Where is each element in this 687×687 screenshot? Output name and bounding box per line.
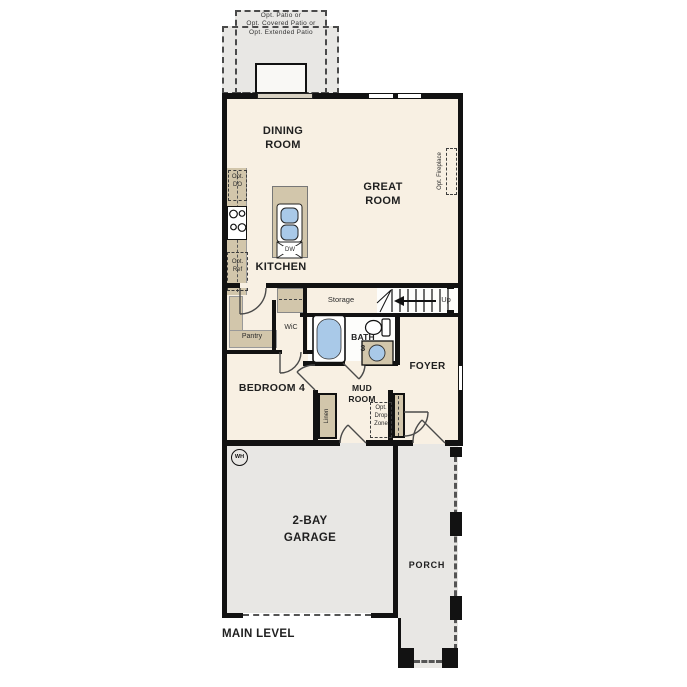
floor-plan: WH xyxy=(0,0,687,687)
porch-post-bottom-right xyxy=(442,648,458,668)
porch-post-mid1 xyxy=(450,512,462,536)
wall-right-upper xyxy=(458,93,463,366)
pantry-door-opening xyxy=(240,283,266,288)
wall-pantry-right xyxy=(272,300,276,352)
garage-door-dash xyxy=(243,614,371,617)
window-foyer xyxy=(458,366,463,390)
porch-floor xyxy=(398,444,458,668)
dw-label: DW xyxy=(283,246,297,254)
bedroom4-label: BEDROOM 4 xyxy=(227,382,317,396)
window-top-1 xyxy=(369,93,393,99)
porch-edge-left xyxy=(398,618,401,668)
opt-fireplace-outline xyxy=(446,148,457,195)
wall-bath-bottom-a xyxy=(303,361,345,366)
wic-label: WiC xyxy=(278,323,304,332)
wall-bath-bottom-b xyxy=(365,361,398,366)
opt-fireplace-label: Opt. Fireplace xyxy=(436,146,444,196)
hall-cabinet-dash xyxy=(279,299,302,300)
wall-left xyxy=(222,93,227,618)
mudroom-label: MUD ROOM xyxy=(338,383,386,405)
hall-cabinet xyxy=(277,288,304,313)
garage-label: 2-BAY GARAGE xyxy=(260,513,360,546)
porch-post-top xyxy=(450,447,462,457)
coat-closet xyxy=(393,393,405,438)
stair-post-top xyxy=(447,284,454,289)
drop-zone-label: Opt. Drop Zone xyxy=(368,404,394,428)
opt-do-label: Opt. DO xyxy=(228,173,247,189)
up-label: Up xyxy=(437,295,455,305)
patio-step xyxy=(255,63,307,94)
opt-ref-label: Opt. Ref xyxy=(227,258,248,274)
wall-house-bottom-b xyxy=(366,440,413,446)
foyer-label: FOYER xyxy=(400,360,455,373)
wall-garage-right xyxy=(393,446,398,618)
porch-label: PORCH xyxy=(398,560,456,572)
great-room-label: GREAT ROOM xyxy=(338,180,428,209)
wall-right-lower xyxy=(458,390,463,446)
wall-wic-right xyxy=(303,313,307,354)
porch-post-mid2 xyxy=(450,596,462,620)
kitchen-label: KITCHEN xyxy=(236,260,326,274)
wall-house-bottom-a xyxy=(222,440,340,446)
patio-slider-door xyxy=(257,93,313,99)
main-level-label: MAIN LEVEL xyxy=(222,627,352,642)
wall-storage-bottom xyxy=(300,313,463,317)
pantry-label: Pantry xyxy=(230,332,274,341)
cooktop xyxy=(227,206,247,240)
storage-label: Storage xyxy=(311,295,371,305)
stair-post-bottom xyxy=(447,310,454,315)
porch-rail-bottom xyxy=(414,660,442,663)
wall-bedroom-top xyxy=(227,350,282,354)
bath3-label: BATH 3 xyxy=(345,332,381,354)
linen-label: Linen xyxy=(323,398,331,434)
window-top-2 xyxy=(398,93,421,99)
patio-label: Opt. Patio or Opt. Covered Patio or Opt.… xyxy=(225,12,337,37)
wh-label: WH xyxy=(235,454,244,460)
dining-room-label: DINING ROOM xyxy=(238,124,328,153)
coat-closet-dash xyxy=(398,396,399,436)
water-heater-icon: WH xyxy=(231,449,248,466)
wall-house-bottom-c xyxy=(445,440,463,446)
wall-bedroom-right-b xyxy=(313,390,318,444)
wall-bath-right xyxy=(395,313,400,365)
